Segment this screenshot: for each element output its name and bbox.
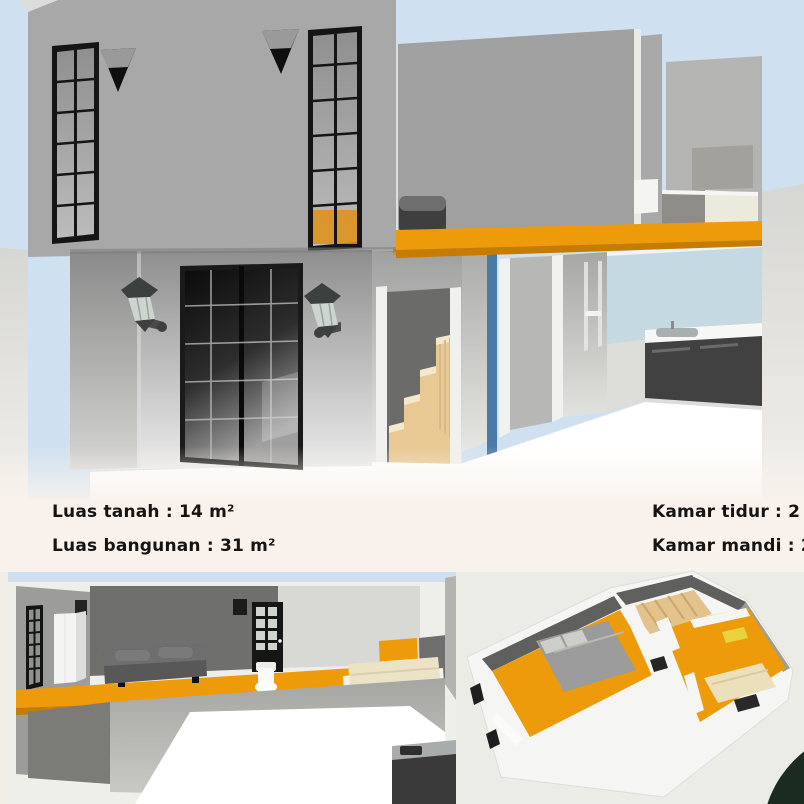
kitchen-counter [645,321,762,406]
fridge [634,179,658,214]
exterior-cutaway-render [0,0,804,572]
sky-strip [8,572,456,582]
window-left [52,42,99,244]
toilet [255,662,277,693]
wardrobe [54,611,86,684]
bedroom-window [26,605,43,690]
floorplan-render [456,571,804,804]
bedrooms-label: Kamar tidur : 2 [652,502,800,522]
bathrooms-label: Kamar mandi : 2 [652,536,804,556]
render-canvas [0,0,804,804]
interior-door [252,602,283,672]
entry-double-door [180,263,303,470]
building-area-label: Luas bangunan : 31 m² [52,536,276,556]
door-frame [499,258,510,438]
lower-kitchen-counter [392,740,456,804]
window-right [308,26,362,251]
lower-wall-dark [28,702,110,784]
cut-wall-blue-edge [487,254,497,476]
land-area-label: Luas tanah : 14 m² [52,502,235,522]
door-frame [552,255,563,422]
facade-pillar [70,251,137,470]
property-listing-image: Luas tanah : 14 m² Luas bangunan : 31 m²… [0,0,804,804]
interior-cutaway-render [8,572,456,804]
